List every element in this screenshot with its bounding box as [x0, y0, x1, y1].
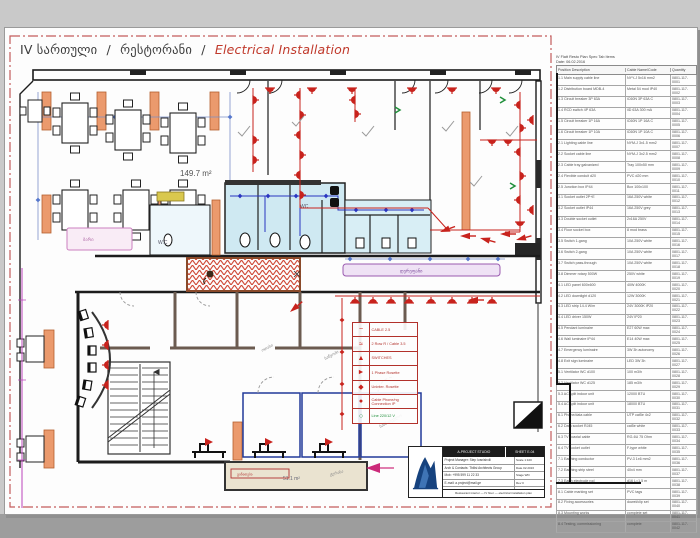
spec-cell-qty: 0801-117-0037: [670, 467, 696, 477]
spec-cell-desc: 3.7 Switch pass-through: [557, 260, 625, 270]
spec-cell-name: Metal 54 mod IP40: [625, 86, 670, 96]
spec-header-name: Cable Name/Code: [625, 68, 670, 73]
spec-cell-name: 16A 250V white: [625, 195, 670, 205]
spec-cell-qty: 0801-117-0025: [670, 336, 696, 346]
spec-cell-name: LED 3W 3h: [625, 358, 670, 368]
ac-unit-icon: [192, 444, 346, 458]
spec-table-row: 6.2 Data socket RJ45cat5e white0801-117-…: [556, 424, 697, 435]
spec-table-row: 3.5 Switch 1-gang10A 250V white0801-117-…: [556, 238, 697, 249]
legend-item-label: Uninter. Rosette: [370, 381, 417, 394]
spec-cell-qty: 0801-117-0028: [670, 369, 696, 379]
spec-cell-name: 24V 3000K IP20: [625, 304, 670, 314]
spec-cell-desc: 6.2 Data socket RJ45: [557, 424, 625, 434]
spec-cell-name: 185 m3/h: [625, 380, 670, 390]
spec-cell-desc: 7.1 Earthing conductor: [557, 456, 625, 466]
counter-block: [157, 192, 184, 201]
spec-table-row: 2.1 Lighting cable lineNYM-J 3x1.5 mm208…: [556, 140, 697, 151]
spec-table-row: 2.3 Cable tray galvanizedTray 100x50 mm0…: [556, 162, 697, 173]
spec-table-row: 4.2 LED downlight d12012W 3000K0801-117-…: [556, 293, 697, 304]
spec-table-row: 4.4 LED driver 150W24V IP200801-117-0023: [556, 315, 697, 326]
spec-table-row: 2.5 Junction box IP44Box 100x1000801-117…: [556, 184, 697, 195]
spec-table-row: 8.2 Fixing accessoriesdowel/clip set0801…: [556, 500, 697, 511]
legend-item-label: CABLE 2.5: [370, 323, 417, 336]
spec-table-row: 8.4 Testing, commissioningcomplete0801-1…: [556, 522, 697, 533]
spec-header-desc: Position Description: [557, 68, 625, 73]
legend-item: ○Line 220/12 V: [353, 409, 417, 422]
spec-cell-qty: 0801-117-0004: [670, 108, 696, 118]
double-socket-icon: ≈: [353, 337, 370, 350]
spec-cell-name: PV-3 1x6 mm2: [625, 456, 670, 466]
spec-cell-desc: 8.3 Mounting works: [557, 511, 625, 521]
spec-cell-qty: 0801-117-0015: [670, 228, 696, 238]
spec-table-row: 7.2 Earthing strip steel40x4 mm0801-117-…: [556, 467, 697, 478]
spec-cell-qty: 0801-117-0001: [670, 75, 696, 85]
spec-table-header: Position Description Cable Name/Code Qua…: [556, 65, 697, 75]
spec-cell-qty: 0801-117-0029: [670, 380, 696, 390]
spec-cell-desc: 3.8 Dimmer rotary 500W: [557, 271, 625, 281]
terrace-arrow-icon: [366, 463, 380, 473]
spec-cell-name: PVC tags: [625, 489, 670, 499]
spec-table-row: 5.1 Ventilator WC d100100 m3/h0801-117-0…: [556, 369, 697, 380]
spec-cell-qty: 0801-117-0036: [670, 456, 696, 466]
title-block-meta-cell: Stage WD: [515, 472, 544, 480]
legend-item-label: 2 Row R / Cable 3.5: [370, 337, 417, 350]
spec-table-row: 5.3 AC split indoor unit12000 BTU0801-11…: [556, 391, 697, 402]
title-block-header: A-PROJECT STUDIO SHEET E-04: [443, 447, 544, 457]
spec-cell-qty: 0801-117-0042: [670, 522, 696, 532]
spec-cell-qty: 0801-117-0026: [670, 347, 696, 357]
spec-cell-qty: 0801-117-0014: [670, 217, 696, 227]
spec-cell-name: NYM-J 3x2.5 mm2: [625, 151, 670, 161]
terrace-area-label: 51.1 m²: [283, 476, 300, 482]
spec-table-row: 3.8 Dimmer rotary 500W250V white0801-117…: [556, 271, 697, 282]
spec-cell-desc: 2.1 Lighting cable line: [557, 140, 625, 150]
spec-table-row: 1.2 Distribution board MDB-4Metal 54 mod…: [556, 86, 697, 97]
spec-cell-qty: 0801-117-0016: [670, 238, 696, 248]
spec-cell-name: Tray 100x50 mm: [625, 162, 670, 172]
spec-cell-desc: 1.3 Circuit breaker 3P 63A: [557, 97, 625, 107]
spec-table-row: 7.1 Earthing conductorPV-3 1x6 mm20801-1…: [556, 456, 697, 467]
spec-cell-qty: 0801-117-0034: [670, 434, 696, 444]
spec-cell-qty: 0801-117-0024: [670, 326, 696, 336]
spec-cell-qty: 0801-117-0023: [670, 315, 696, 325]
scanned-drawing-page: 149.7 m² ბარი: [0, 0, 700, 538]
spec-table-row: 4.3 LED strip 14.4 W/m24V 3000K IP200801…: [556, 304, 697, 315]
spec-cell-qty: 0801-117-0038: [670, 478, 696, 488]
spec-table: IV Flatt Resto Plan Spec Tab Items Date:…: [556, 55, 697, 533]
spec-cell-name: 10A 250V white: [625, 238, 670, 248]
spec-table-row: 1.1 Main supply cable lineNYY-J 5x16 mm2…: [556, 75, 697, 86]
spec-cell-desc: 3.5 Switch 1-gang: [557, 238, 625, 248]
spec-cell-name: 3W 3h autonomy: [625, 347, 670, 357]
legend-item: ~CABLE 2.5: [353, 323, 417, 337]
spec-header-qty: Quantity: [670, 68, 696, 73]
spec-table-row: 8.3 Mounting workscomplete set0801-117-0…: [556, 511, 697, 522]
drawing-title: IV სართული / რესტორანი / Electrical Inst…: [20, 42, 350, 57]
spec-cell-name: NYM-J 3x1.5 mm2: [625, 140, 670, 150]
spec-cell-desc: 1.5 Circuit breaker 1P 16A: [557, 119, 625, 129]
spec-cell-qty: 0801-117-0008: [670, 151, 696, 161]
spec-cell-desc: 3.4 Floor socket box: [557, 228, 625, 238]
legend-item-label: Cable Phone/ng Connection IP: [370, 395, 417, 408]
spec-table-row: 4.5 Pendant luminaireE27 60W max0801-117…: [556, 326, 697, 337]
spec-table-row: 3.2 Socket outlet IP4416A 250V grey0801-…: [556, 206, 697, 217]
spec-table-rows: 1.1 Main supply cable lineNYY-J 5x16 mm2…: [556, 75, 697, 532]
title-subject: Electrical Installation: [215, 42, 350, 57]
spec-title-line2: Date: 06.02.2016: [556, 60, 697, 65]
spec-cell-desc: 2.3 Cable tray galvanized: [557, 162, 625, 172]
title-block-meta-cell: Scale 1:100: [515, 457, 544, 465]
spec-cell-name: 10A 250V white: [625, 260, 670, 270]
spec-cell-desc: 1.6 Circuit breaker 1P 10A: [557, 130, 625, 140]
camera-box-icon: [330, 198, 339, 207]
lounge-seating: [17, 268, 110, 508]
spec-cell-qty: 0801-117-0013: [670, 206, 696, 216]
spec-cell-name: complete set: [625, 511, 670, 521]
spec-cell-desc: 3.6 Switch 2-gang: [557, 249, 625, 259]
spec-cell-qty: 0801-117-0017: [670, 249, 696, 259]
spec-cell-name: 18000 BTU: [625, 402, 670, 412]
spec-cell-desc: 5.1 Ventilator WC d100: [557, 369, 625, 379]
spec-cell-desc: 4.2 LED downlight d120: [557, 293, 625, 303]
spec-cell-desc: 4.7 Emergency luminaire: [557, 347, 625, 357]
spec-cell-name: 8 mod brass: [625, 228, 670, 238]
spec-table-row: 3.3 Double socket outlet2x16A 250V0801-1…: [556, 217, 697, 228]
switch-icon: ▲: [353, 352, 370, 365]
title-separator: /: [201, 42, 205, 57]
spec-table-row: 1.4 RCD switch 4P 63AiID 63A 300 mA0801-…: [556, 108, 697, 119]
spec-table-row: 3.4 Floor socket box8 mod brass0801-117-…: [556, 228, 697, 239]
spec-cell-qty: 0801-117-0041: [670, 511, 696, 521]
spec-cell-name: 16A 250V grey: [625, 206, 670, 216]
spec-cell-qty: 0801-117-0011: [670, 184, 696, 194]
title-block-row: E-mail: a.project@mail.ge: [443, 480, 514, 488]
spec-cell-qty: 0801-117-0005: [670, 119, 696, 129]
spec-cell-name: E14 40W max: [625, 336, 670, 346]
spec-table-row: 6.3 TV coaxial cableRG-6U 75 Ohm0801-117…: [556, 434, 697, 445]
sheet-number: SHEET E-04: [506, 447, 544, 457]
spec-bold-border: [569, 383, 571, 482]
spec-cell-desc: 8.1 Cable marking set: [557, 489, 625, 499]
bar-label: ბარი: [83, 236, 94, 243]
legend-item: ▲SWITCHES: [353, 352, 417, 366]
main-area-label: 149.7 m²: [180, 169, 212, 178]
title-block-row: Project Manager: Step Ivanishvili: [443, 457, 514, 465]
title-block-footer: Restaurant interior — IV floor — electri…: [443, 489, 544, 497]
legend-rows: ~CABLE 2.5≈2 Row R / Cable 3.5▲SWITCHES►…: [353, 323, 417, 423]
spec-cell-qty: 0801-117-0021: [670, 293, 696, 303]
stairwell: [108, 362, 170, 454]
ground-line-icon: ○: [353, 409, 370, 422]
spec-table-row: 5.4 AC split indoor unit18000 BTU0801-11…: [556, 402, 697, 413]
spec-cell-qty: 0801-117-0018: [670, 260, 696, 270]
title-block-meta-cell: Date 02.2016: [515, 465, 544, 473]
spec-cell-qty: 0801-117-0019: [670, 271, 696, 281]
title-block-main: A-PROJECT STUDIO SHEET E-04 Project Mana…: [443, 447, 544, 497]
spec-table-row: 4.1 LED panel 600x60040W 4000K0801-117-0…: [556, 282, 697, 293]
spec-cell-qty: 0801-117-0006: [670, 130, 696, 140]
spec-table-row: 4.6 Wall luminaire IP44E14 40W max0801-1…: [556, 336, 697, 347]
spec-cell-name: complete: [625, 522, 670, 532]
spec-cell-desc: 3.2 Socket outlet IP44: [557, 206, 625, 216]
room-label: საწყობი: [323, 349, 340, 361]
spec-cell-desc: 8.4 Testing, commissioning: [557, 522, 625, 532]
company-name: A-PROJECT STUDIO: [443, 447, 506, 457]
spec-cell-qty: 0801-117-0032: [670, 413, 696, 423]
spec-cell-qty: 0801-117-0012: [670, 195, 696, 205]
spec-bold-border: [556, 482, 641, 484]
spec-cell-desc: 1.4 RCD switch 4P 63A: [557, 108, 625, 118]
spec-cell-desc: 4.6 Wall luminaire IP44: [557, 336, 625, 346]
spec-table-row: 3.1 Socket outlet 2P+E16A 250V white0801…: [556, 195, 697, 206]
room-label: ოთახი: [260, 342, 274, 353]
legend-item-label: 1 Phase Rosette: [370, 366, 417, 379]
spec-cell-name: 10A 250V white: [625, 249, 670, 259]
terrace: 51.1 m² განათება ტერასა: [225, 462, 394, 490]
phase-rosette-icon: ►: [353, 366, 370, 379]
spec-cell-name: RG-6U 75 Ohm: [625, 434, 670, 444]
spec-cell-desc: 8.2 Fixing accessories: [557, 500, 625, 510]
green-line-marks: [395, 97, 515, 189]
spec-table-row: 1.5 Circuit breaker 1P 16AiC60N 1P 16A C…: [556, 119, 697, 130]
title-block-meta-cell: Rev 0: [515, 480, 544, 488]
spec-cell-qty: 0801-117-0009: [670, 162, 696, 172]
title-block-row: Arch & Contacts: Tbilisi Architects Grou…: [443, 465, 514, 473]
spec-cell-desc: 7.2 Earthing strip steel: [557, 467, 625, 477]
title-block: A-PROJECT STUDIO SHEET E-04 Project Mana…: [408, 446, 545, 498]
terrace-tag: განათება: [237, 473, 253, 477]
spec-cell-name: 100 m3/h: [625, 369, 670, 379]
spec-table-row: 3.6 Switch 2-gang10A 250V white0801-117-…: [556, 249, 697, 260]
logo-swoosh-icon: [412, 452, 440, 492]
spec-bold-border: [556, 383, 569, 385]
legend-item-label: SWITCHES: [370, 352, 417, 365]
bar-label-box: [67, 228, 132, 250]
spec-cell-name: 12000 BTU: [625, 391, 670, 401]
spec-cell-qty: 0801-117-0020: [670, 282, 696, 292]
spec-cell-name: 40W 4000K: [625, 282, 670, 292]
spec-cell-desc: 3.1 Socket outlet 2P+E: [557, 195, 625, 205]
legend-item: ►1 Phase Rosette: [353, 366, 417, 380]
spec-table-row: 4.8 Exit sign luminaireLED 3W 3h0801-117…: [556, 358, 697, 369]
spec-cell-desc: 6.3 TV coaxial cable: [557, 434, 625, 444]
phone-connection-icon: ●: [353, 395, 370, 408]
legend-item: ≈2 Row R / Cable 3.5: [353, 337, 417, 351]
spec-cell-name: E27 60W max: [625, 326, 670, 336]
spec-cell-desc: 4.1 LED panel 600x600: [557, 282, 625, 292]
wc-left-label: W.C: [158, 240, 168, 246]
spec-cell-desc: 1.2 Distribution board MDB-4: [557, 86, 625, 96]
spec-cell-desc: 4.8 Exit sign luminaire: [557, 358, 625, 368]
spec-cell-desc: 3.3 Double socket outlet: [557, 217, 625, 227]
spec-cell-qty: 0801-117-0035: [670, 445, 696, 455]
spec-cell-desc: 5.3 AC split indoor unit: [557, 391, 625, 401]
spec-cell-desc: 4.5 Pendant luminaire: [557, 326, 625, 336]
spec-table-row: 1.3 Circuit breaker 3P 63AiC60N 3P 63A C…: [556, 97, 697, 108]
legend-item: ◆Uninter. Rosette: [353, 381, 417, 395]
spec-cell-name: 12W 3000K: [625, 293, 670, 303]
spec-cell-desc: 6.1 Phone/data cable: [557, 413, 625, 423]
spec-cell-name: iID 63A 300 mA: [625, 108, 670, 118]
spec-cell-name: 40x4 mm: [625, 467, 670, 477]
title-block-body: Project Manager: Step IvanishviliArch & …: [443, 457, 544, 489]
spec-table-row: 6.1 Phone/data cableUTP cat5e 4x20801-11…: [556, 413, 697, 424]
cable-squiggle-icon: ~: [353, 323, 370, 336]
uninterruptible-rosette-icon: ◆: [353, 381, 370, 394]
spec-cell-desc: 5.4 AC split indoor unit: [557, 402, 625, 412]
spec-cell-desc: 2.4 Flexible conduit d20: [557, 173, 625, 183]
corridor-label: დერეფანი: [400, 268, 423, 275]
camera-box-icon: [330, 186, 339, 195]
spec-cell-qty: 0801-117-0010: [670, 173, 696, 183]
spec-cell-desc: 1.1 Main supply cable line: [557, 75, 625, 85]
legend-item: ●Cable Phone/ng Connection IP: [353, 395, 417, 409]
spec-cell-name: iC60N 1P 10A C: [625, 130, 670, 140]
spec-cell-qty: 0801-117-0031: [670, 402, 696, 412]
spec-cell-desc: 2.2 Socket cable line: [557, 151, 625, 161]
spec-cell-qty: 0801-117-0027: [670, 358, 696, 368]
company-logo: [409, 447, 443, 497]
spec-cell-desc: 4.3 LED strip 14.4 W/m: [557, 304, 625, 314]
spec-table-title: IV Flatt Resto Plan Spec Tab Items Date:…: [556, 55, 697, 64]
title-floor: IV სართული: [20, 42, 97, 57]
spec-bold-border: [556, 73, 558, 383]
spec-cell-name: iC60N 1P 16A C: [625, 119, 670, 129]
spec-table-row: 4.7 Emergency luminaire3W 3h autonomy080…: [556, 347, 697, 358]
spec-cell-name: F-type white: [625, 445, 670, 455]
title-room: რესტორანი: [120, 42, 192, 57]
spec-cell-desc: 6.4 TV socket outlet: [557, 445, 625, 455]
spec-cell-qty: 0801-117-0039: [670, 489, 696, 499]
spec-cell-name: PVC d20 mm: [625, 173, 670, 183]
spec-cell-desc: 4.4 LED driver 150W: [557, 315, 625, 325]
spec-table-row: 2.4 Flexible conduit d20PVC d20 mm0801-1…: [556, 173, 697, 184]
spec-cell-name: 24V IP20: [625, 315, 670, 325]
spec-cell-qty: 0801-117-0033: [670, 424, 696, 434]
spec-table-row: 3.7 Switch pass-through10A 250V white080…: [556, 260, 697, 271]
spec-cell-desc: 2.5 Junction box IP44: [557, 184, 625, 194]
title-separator: /: [107, 42, 111, 57]
spec-cell-name: cat5e white: [625, 424, 670, 434]
spec-table-row: 1.6 Circuit breaker 1P 10AiC60N 1P 10A C…: [556, 130, 697, 141]
spec-cell-name: iC60N 3P 63A C: [625, 97, 670, 107]
spec-cell-name: dowel/clip set: [625, 500, 670, 510]
title-block-meta: Scale 1:100Date 02.2016Stage WDRev 0: [514, 457, 544, 489]
spec-cell-qty: 0801-117-0040: [670, 500, 696, 510]
spec-cell-name: UTP cat5e 4x2: [625, 413, 670, 423]
spec-cell-qty: 0801-117-0003: [670, 97, 696, 107]
spec-table-row: 6.4 TV socket outletF-type white0801-117…: [556, 445, 697, 456]
spec-cell-name: 250V white: [625, 271, 670, 281]
wc-right-label: WC: [300, 204, 309, 210]
spec-table-row: 2.2 Socket cable lineNYM-J 3x2.5 mm20801…: [556, 151, 697, 162]
spec-cell-qty: 0801-117-0007: [670, 140, 696, 150]
spec-cell-name: Box 100x100: [625, 184, 670, 194]
door-check-marks: [238, 116, 518, 186]
title-block-row: Mob: +995 599 11 22 33: [443, 472, 514, 480]
spec-cell-qty: 0801-117-0002: [670, 86, 696, 96]
spec-cell-name: NYY-J 5x16 mm2: [625, 75, 670, 85]
spec-cell-qty: 0801-117-0030: [670, 391, 696, 401]
spec-table-row: 8.1 Cable marking setPVC tags0801-117-00…: [556, 489, 697, 500]
spec-table-row: 5.2 Ventilator WC d125185 m3/h0801-117-0…: [556, 380, 697, 391]
spec-cell-name: 2x16A 250V: [625, 217, 670, 227]
legend-item-label: Line 220/12 V: [370, 409, 417, 422]
electrical-legend: ~CABLE 2.5≈2 Row R / Cable 3.5▲SWITCHES►…: [352, 322, 418, 424]
title-block-rows: Project Manager: Step IvanishviliArch & …: [443, 457, 514, 489]
hatched-corridor: დერეფანი: [187, 257, 505, 291]
spec-cell-qty: 0801-117-0022: [670, 304, 696, 314]
